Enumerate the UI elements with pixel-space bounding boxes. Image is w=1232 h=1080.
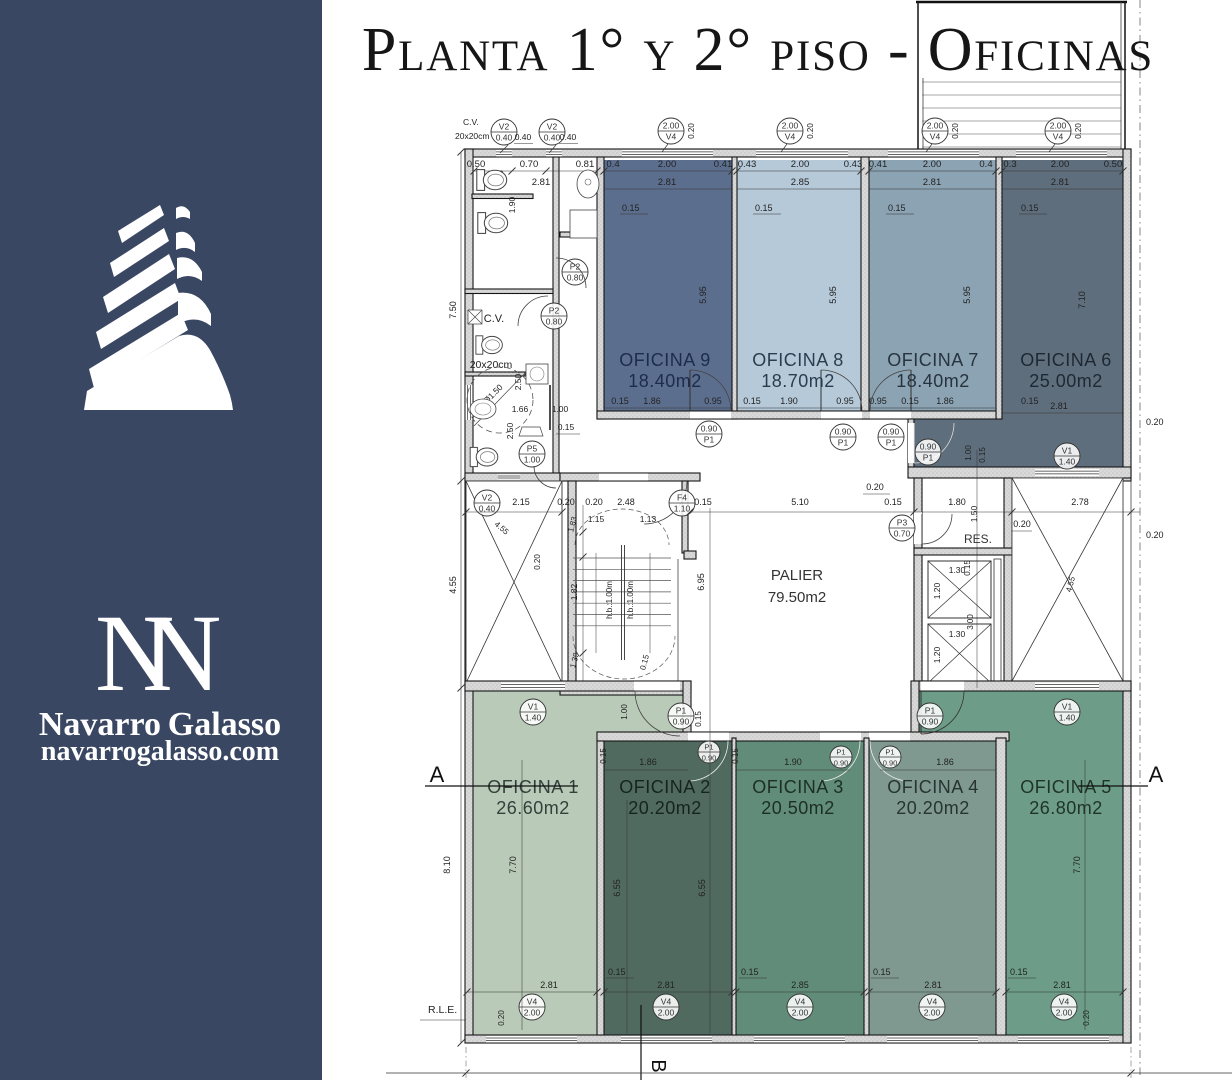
svg-text:V1: V1 (528, 702, 539, 712)
svg-text:2.00: 2.00 (524, 1008, 541, 1018)
svg-text:0.90: 0.90 (673, 717, 690, 727)
svg-text:2.81: 2.81 (658, 177, 677, 188)
svg-text:R.L.E.: R.L.E. (428, 1004, 457, 1016)
svg-text:OFICINA 3: OFICINA 3 (752, 777, 844, 797)
svg-text:2.81: 2.81 (923, 177, 942, 188)
svg-text:P1: P1 (925, 706, 936, 716)
svg-text:0.15: 0.15 (1021, 396, 1039, 406)
svg-text:0.20: 0.20 (866, 482, 884, 492)
svg-text:2.81: 2.81 (532, 177, 551, 188)
svg-text:V4: V4 (930, 132, 941, 142)
svg-text:2.85: 2.85 (791, 177, 810, 188)
svg-text:OFICINA 5: OFICINA 5 (1020, 777, 1112, 797)
svg-text:0.20: 0.20 (1146, 417, 1164, 427)
svg-text:1.13: 1.13 (640, 514, 657, 524)
svg-text:2.00: 2.00 (791, 159, 810, 170)
svg-text:7.70: 7.70 (1072, 856, 1082, 874)
svg-text:0.20: 0.20 (1146, 530, 1164, 540)
svg-text:h.b.:1.00m: h.b.:1.00m (626, 581, 635, 619)
svg-text:V2: V2 (499, 122, 510, 132)
svg-text:P1: P1 (836, 748, 845, 757)
svg-text:18.40m2: 18.40m2 (896, 371, 970, 391)
svg-text:0.15: 0.15 (741, 967, 759, 977)
svg-text:P1: P1 (886, 438, 897, 448)
svg-text:20.50m2: 20.50m2 (761, 798, 835, 818)
svg-text:1.30: 1.30 (949, 565, 966, 575)
svg-text:0.90: 0.90 (835, 427, 852, 437)
svg-text:0.43: 0.43 (844, 159, 863, 170)
svg-text:V4: V4 (661, 997, 672, 1007)
svg-text:h.b.:1.00m: h.b.:1.00m (605, 581, 614, 619)
svg-text:P2: P2 (570, 262, 581, 272)
svg-text:1.40: 1.40 (525, 713, 542, 723)
svg-text:0.20: 0.20 (585, 497, 603, 507)
svg-text:OFICINA 1: OFICINA 1 (487, 777, 579, 797)
svg-text:0.15: 0.15 (611, 396, 629, 406)
svg-text:A: A (1149, 762, 1164, 787)
svg-text:N: N (142, 592, 221, 714)
svg-text:2.15: 2.15 (512, 497, 530, 507)
svg-text:2.00: 2.00 (1056, 1008, 1073, 1018)
svg-text:V4: V4 (666, 132, 677, 142)
svg-text:0.20: 0.20 (951, 123, 960, 139)
svg-text:1.90: 1.90 (784, 757, 802, 767)
svg-text:Planta 1° y 2° piso - Oficinas: Planta 1° y 2° piso - Oficinas (362, 16, 1154, 84)
svg-text:5.10: 5.10 (791, 497, 809, 507)
svg-text:0.90: 0.90 (834, 759, 849, 768)
svg-text:26.80m2: 26.80m2 (1029, 798, 1103, 818)
svg-text:20.20m2: 20.20m2 (628, 798, 702, 818)
svg-text:V2: V2 (482, 493, 493, 503)
svg-text:1.15: 1.15 (588, 514, 605, 524)
svg-text:RES.: RES. (964, 532, 992, 546)
svg-text:2.81: 2.81 (924, 980, 942, 990)
svg-text:0.15: 0.15 (873, 967, 891, 977)
svg-text:0.40: 0.40 (560, 132, 577, 142)
svg-text:6.95: 6.95 (696, 573, 706, 591)
svg-text:1.80: 1.80 (948, 497, 966, 507)
svg-text:20.20m2: 20.20m2 (896, 798, 970, 818)
svg-text:7.10: 7.10 (1077, 291, 1087, 309)
svg-text:0.90: 0.90 (883, 427, 900, 437)
svg-text:79.50m2: 79.50m2 (768, 589, 826, 606)
svg-text:0.95: 0.95 (869, 396, 887, 406)
svg-text:1.00: 1.00 (964, 445, 973, 461)
svg-text:1.00: 1.00 (552, 404, 569, 414)
svg-text:0.20: 0.20 (497, 1010, 506, 1026)
svg-text:1.82: 1.82 (569, 583, 579, 600)
svg-text:0.15: 0.15 (1021, 203, 1039, 213)
svg-text:1.20: 1.20 (932, 582, 942, 599)
svg-text:V4: V4 (795, 997, 806, 1007)
svg-text:18.40m2: 18.40m2 (628, 371, 702, 391)
svg-text:OFICINA 6: OFICINA 6 (1020, 350, 1112, 370)
svg-text:2.81: 2.81 (657, 980, 675, 990)
svg-text:0.41: 0.41 (714, 159, 733, 170)
svg-text:2.00: 2.00 (658, 1008, 675, 1018)
svg-text:8.10: 8.10 (442, 856, 452, 874)
svg-text:V4: V4 (527, 997, 538, 1007)
svg-text:1.00: 1.00 (620, 704, 629, 720)
svg-text:OFICINA 7: OFICINA 7 (887, 350, 979, 370)
svg-text:0.15: 0.15 (888, 203, 906, 213)
svg-text:0.81: 0.81 (576, 159, 595, 170)
svg-text:0.40: 0.40 (544, 133, 561, 143)
svg-text:P1: P1 (704, 743, 713, 752)
svg-text:0.15: 0.15 (901, 396, 919, 406)
svg-text:B: B (647, 1059, 669, 1072)
svg-text:P1: P1 (704, 435, 715, 445)
svg-text:OFICINA 4: OFICINA 4 (887, 777, 979, 797)
svg-text:2.78: 2.78 (1071, 497, 1089, 507)
svg-text:0.90: 0.90 (883, 759, 898, 768)
svg-text:26.60m2: 26.60m2 (496, 798, 570, 818)
svg-text:navarrogalasso.com: navarrogalasso.com (41, 736, 279, 767)
svg-text:V4: V4 (1053, 132, 1064, 142)
svg-text:0.50: 0.50 (1104, 159, 1123, 170)
svg-text:0.15: 0.15 (622, 203, 640, 213)
svg-text:0.90: 0.90 (701, 424, 718, 434)
svg-text:0.70: 0.70 (520, 159, 539, 170)
svg-text:0.40: 0.40 (496, 133, 513, 143)
svg-text:P1: P1 (676, 706, 687, 716)
svg-text:P1: P1 (838, 438, 849, 448)
svg-text:2.00: 2.00 (923, 159, 942, 170)
svg-text:0.15: 0.15 (884, 497, 902, 507)
svg-text:0.50: 0.50 (467, 159, 486, 170)
svg-text:2.50: 2.50 (513, 373, 523, 390)
svg-text:0.95: 0.95 (704, 396, 722, 406)
svg-text:OFICINA 2: OFICINA 2 (619, 777, 711, 797)
svg-text:P2: P2 (549, 306, 560, 316)
svg-text:1.90: 1.90 (780, 396, 798, 406)
svg-text:0.15: 0.15 (694, 711, 703, 727)
svg-text:5.95: 5.95 (828, 286, 838, 304)
svg-text:0.90: 0.90 (922, 717, 939, 727)
svg-text:2.81: 2.81 (1051, 177, 1070, 188)
svg-text:0.90: 0.90 (702, 754, 717, 763)
svg-text:0.15: 0.15 (599, 748, 608, 764)
svg-text:0.20: 0.20 (1013, 519, 1031, 529)
svg-text:V4: V4 (1059, 997, 1070, 1007)
svg-text:V1: V1 (1062, 702, 1073, 712)
svg-text:1.86: 1.86 (639, 757, 657, 767)
svg-text:0.15: 0.15 (558, 422, 575, 432)
svg-text:2.00: 2.00 (1050, 121, 1067, 131)
svg-text:6.55: 6.55 (697, 879, 707, 897)
svg-text:20x20cm: 20x20cm (455, 131, 490, 141)
svg-text:P1: P1 (885, 748, 894, 757)
svg-text:3.00: 3.00 (966, 614, 975, 630)
svg-text:0.15: 0.15 (731, 748, 740, 764)
svg-text:0.20: 0.20 (533, 554, 542, 570)
svg-text:2.00: 2.00 (792, 1008, 809, 1018)
svg-text:0.90: 0.90 (920, 442, 937, 452)
svg-text:P5: P5 (527, 444, 538, 454)
svg-text:0.80: 0.80 (567, 273, 584, 283)
svg-text:4.55: 4.55 (448, 576, 458, 594)
svg-text:0.4: 0.4 (979, 159, 992, 170)
svg-text:1.20: 1.20 (932, 646, 942, 663)
svg-text:0.4: 0.4 (606, 159, 619, 170)
svg-text:A: A (430, 762, 445, 787)
svg-text:0.15: 0.15 (755, 203, 773, 213)
svg-text:25.00m2: 25.00m2 (1029, 371, 1103, 391)
svg-text:0.15: 0.15 (1010, 967, 1028, 977)
svg-text:2.81: 2.81 (1053, 980, 1071, 990)
svg-text:18.70m2: 18.70m2 (761, 371, 835, 391)
svg-text:2.00: 2.00 (782, 121, 799, 131)
svg-text:0.20: 0.20 (806, 123, 815, 139)
svg-text:V4: V4 (927, 997, 938, 1007)
svg-text:2.00: 2.00 (1051, 159, 1070, 170)
svg-text:1.50: 1.50 (969, 505, 979, 522)
svg-text:2.81: 2.81 (540, 980, 558, 990)
svg-text:5.95: 5.95 (962, 286, 972, 304)
svg-text:2.00: 2.00 (927, 121, 944, 131)
svg-text:0.15: 0.15 (608, 967, 626, 977)
svg-text:1.00: 1.00 (524, 455, 541, 465)
svg-text:1.86: 1.86 (936, 757, 954, 767)
svg-text:2.48: 2.48 (617, 497, 635, 507)
svg-text:2.00: 2.00 (663, 121, 680, 131)
svg-text:OFICINA 8: OFICINA 8 (752, 350, 844, 370)
svg-text:7.50: 7.50 (448, 301, 458, 319)
svg-text:0.15: 0.15 (978, 447, 987, 463)
svg-text:P3: P3 (897, 518, 908, 528)
svg-text:0.43: 0.43 (738, 159, 757, 170)
svg-text:1.86: 1.86 (643, 396, 661, 406)
svg-text:V4: V4 (785, 132, 796, 142)
svg-text:20x20cm: 20x20cm (470, 359, 513, 371)
svg-text:0.20: 0.20 (1074, 123, 1083, 139)
svg-text:C.V.: C.V. (463, 117, 479, 127)
svg-text:2.00: 2.00 (924, 1008, 941, 1018)
svg-text:2.00: 2.00 (658, 159, 677, 170)
svg-text:0.15: 0.15 (694, 497, 712, 507)
svg-text:0.40: 0.40 (515, 132, 532, 142)
svg-text:1.10: 1.10 (674, 504, 691, 514)
svg-text:V1: V1 (1062, 446, 1073, 456)
svg-text:V2: V2 (547, 122, 558, 132)
svg-text:C.V.: C.V. (484, 313, 504, 325)
svg-text:1.66: 1.66 (512, 404, 529, 414)
svg-text:PALIER: PALIER (771, 567, 823, 584)
svg-text:P1: P1 (923, 453, 934, 463)
svg-text:0.3: 0.3 (1003, 159, 1016, 170)
svg-text:0.70: 0.70 (894, 529, 911, 539)
svg-text:0.20: 0.20 (687, 123, 696, 139)
svg-text:6.55: 6.55 (612, 879, 622, 897)
svg-text:1.30: 1.30 (949, 629, 966, 639)
svg-text:F4: F4 (677, 493, 687, 503)
svg-text:2.50: 2.50 (505, 422, 515, 439)
svg-text:0.15: 0.15 (743, 396, 761, 406)
svg-text:1.40: 1.40 (1059, 713, 1076, 723)
svg-text:OFICINA 9: OFICINA 9 (619, 350, 711, 370)
svg-text:2.85: 2.85 (791, 980, 809, 990)
svg-text:0.20: 0.20 (1082, 1010, 1091, 1026)
svg-text:0.95: 0.95 (836, 396, 854, 406)
svg-text:2.81: 2.81 (1050, 401, 1068, 411)
svg-text:5.95: 5.95 (698, 286, 708, 304)
svg-text:0.20: 0.20 (557, 497, 575, 507)
svg-text:7.70: 7.70 (508, 856, 518, 874)
svg-text:1.90: 1.90 (507, 196, 517, 213)
svg-text:1.40: 1.40 (1059, 457, 1076, 467)
svg-text:0.80: 0.80 (546, 317, 563, 327)
svg-text:1.86: 1.86 (936, 396, 954, 406)
